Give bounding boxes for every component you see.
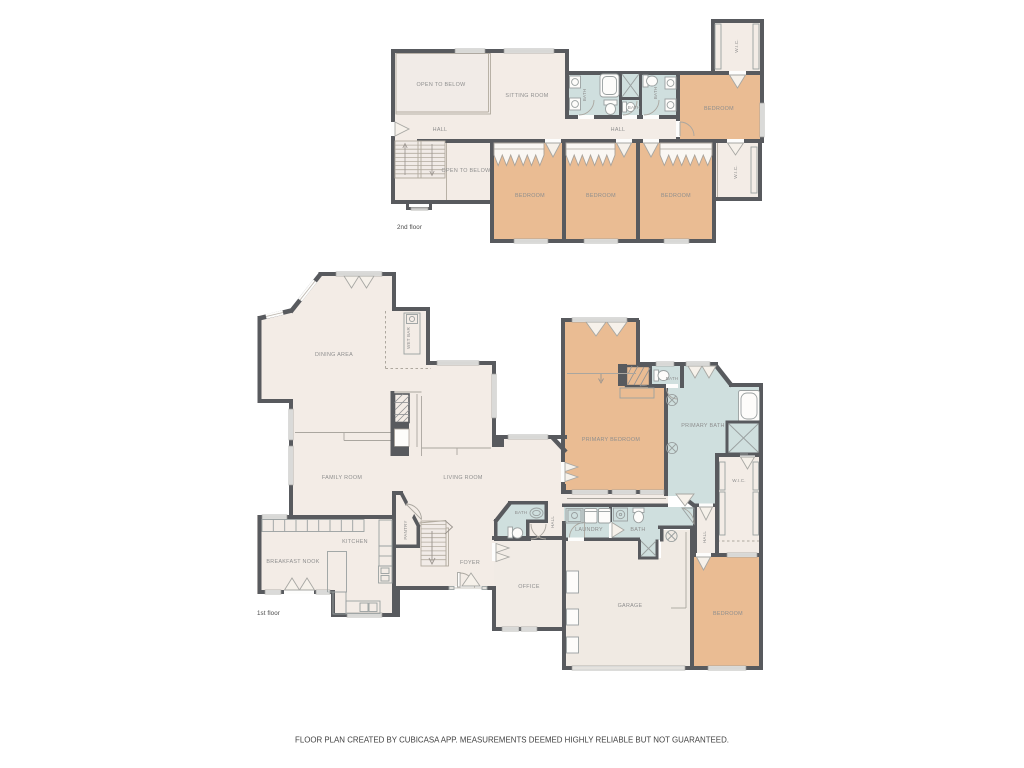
svg-text:GARAGE: GARAGE [618, 603, 643, 609]
svg-text:BATH: BATH [582, 89, 587, 102]
svg-text:OFFICE: OFFICE [518, 584, 540, 590]
svg-text:LIVING ROOM: LIVING ROOM [443, 475, 482, 481]
svg-text:FLOOR PLAN CREATED BY CUBICASA: FLOOR PLAN CREATED BY CUBICASA APP. MEAS… [295, 736, 729, 745]
svg-text:BEDROOM: BEDROOM [713, 611, 743, 617]
svg-text:FOYER: FOYER [460, 560, 480, 566]
svg-text:BEDROOM: BEDROOM [515, 193, 545, 199]
svg-text:W.I.C.: W.I.C. [734, 39, 739, 52]
svg-text:1st floor: 1st floor [257, 610, 280, 617]
svg-text:BATH: BATH [628, 105, 641, 110]
svg-text:BEDROOM: BEDROOM [586, 193, 616, 199]
svg-text:KITCHEN: KITCHEN [342, 539, 368, 545]
svg-text:HALL: HALL [702, 531, 707, 543]
svg-text:PRIMARY BATH: PRIMARY BATH [681, 423, 724, 429]
svg-text:BATH: BATH [630, 527, 645, 533]
svg-text:BEDROOM: BEDROOM [704, 106, 734, 112]
svg-text:BREAKFAST NOOK: BREAKFAST NOOK [266, 559, 319, 565]
svg-text:BATH: BATH [666, 376, 679, 381]
svg-text:W.I.C.: W.I.C. [733, 165, 738, 178]
svg-text:OPEN TO BELOW: OPEN TO BELOW [442, 168, 492, 174]
svg-text:SITTING ROOM: SITTING ROOM [505, 93, 548, 99]
svg-text:FAMILY ROOM: FAMILY ROOM [322, 475, 362, 481]
svg-text:BEDROOM: BEDROOM [661, 193, 691, 199]
svg-text:HALL: HALL [433, 127, 448, 133]
svg-text:HALL: HALL [611, 127, 626, 133]
svg-text:PANTRY: PANTRY [403, 520, 408, 539]
svg-text:LAUNDRY: LAUNDRY [575, 527, 603, 533]
svg-text:BATH: BATH [515, 510, 528, 515]
svg-text:W.I.C.: W.I.C. [732, 478, 745, 483]
svg-text:PRIMARY BEDROOM: PRIMARY BEDROOM [582, 437, 640, 443]
svg-text:BATH: BATH [653, 87, 658, 100]
svg-text:DINING AREA: DINING AREA [315, 352, 353, 358]
svg-text:WET BAR: WET BAR [406, 327, 411, 349]
svg-text:OPEN TO BELOW: OPEN TO BELOW [417, 82, 467, 88]
svg-text:2nd floor: 2nd floor [397, 224, 422, 231]
svg-text:HALL: HALL [550, 516, 555, 528]
